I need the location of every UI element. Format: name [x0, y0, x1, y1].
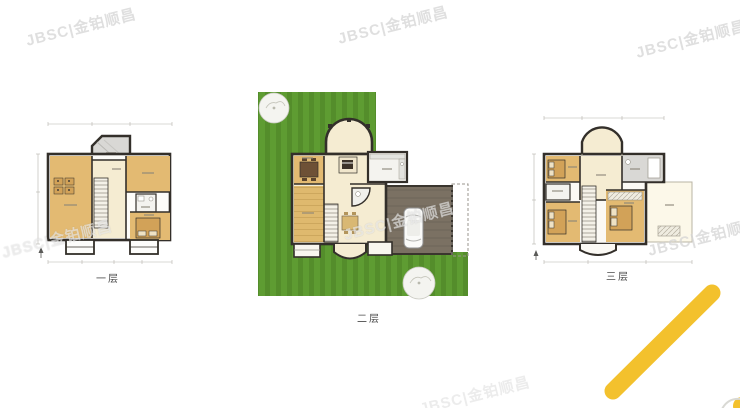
hall — [92, 160, 126, 238]
north-arrow-icon — [534, 250, 539, 260]
piano-icon — [339, 157, 357, 173]
bedroom-bottom-right — [606, 190, 644, 242]
dining-room — [294, 156, 324, 184]
bay-window — [580, 244, 616, 255]
stairs-icon — [324, 204, 338, 242]
stairs-icon — [582, 186, 596, 242]
watermark: JBSC|金铂顺昌 — [23, 3, 138, 51]
watermark: JBSC|金铂顺昌 — [335, 1, 450, 49]
bedroom-top-left — [546, 156, 580, 182]
floor-plan-first: 一层 — [30, 116, 186, 285]
floorplan-sheet: 一层 — [0, 0, 740, 408]
stairs-icon — [94, 178, 108, 228]
terrace — [646, 182, 692, 242]
floor-plan-second: 二层 — [254, 84, 484, 325]
floor-plan-first-drawing — [30, 116, 186, 266]
floor-plan-third: 三层 — [528, 104, 708, 283]
table-icon — [300, 162, 318, 177]
driveway — [380, 184, 468, 256]
bathroom — [622, 156, 662, 182]
floor-plan-second-drawing — [254, 84, 484, 302]
wardrobe-icon — [608, 192, 642, 200]
bathroom — [136, 194, 156, 212]
bedroom-top — [126, 156, 170, 192]
floor-caption-first: 一层 — [30, 270, 186, 285]
watermark: JBSC|金铂顺昌 — [633, 15, 740, 63]
tree-icon — [259, 93, 289, 123]
logo-gray-swirl — [722, 399, 740, 408]
study-room — [294, 186, 324, 242]
closet — [546, 184, 570, 200]
logo-yellow-stroke — [613, 293, 712, 391]
watermark: JBSC|金铂顺昌 — [417, 371, 532, 408]
floor-caption-third: 三层 — [528, 268, 708, 283]
north-arrow-icon — [39, 247, 44, 258]
kitchen — [368, 152, 407, 182]
floor-plan-third-drawing — [528, 104, 708, 266]
turret — [326, 119, 372, 154]
bedroom-bottom-left — [546, 202, 580, 242]
logo-yellow-corner — [733, 397, 740, 408]
bay-windows — [66, 240, 158, 254]
bedroom-bottom — [130, 212, 170, 240]
turret — [582, 127, 622, 154]
tree-icon — [403, 267, 435, 299]
floor-caption-second: 二层 — [254, 310, 484, 325]
car-icon — [404, 208, 423, 248]
living-room — [50, 156, 92, 238]
